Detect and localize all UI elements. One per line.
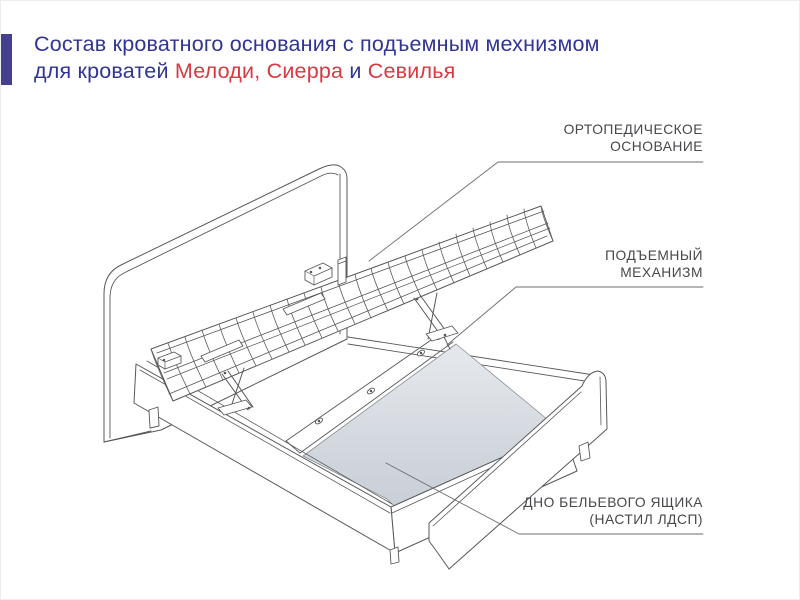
drawer-bottom-label-line1: ДНО БЕЛЬЕВОГО ЯЩИКА [523, 495, 703, 510]
drawer-bottom-label-line2: (НАСТИЛ ЛДСП) [589, 512, 703, 527]
label-orthopedic-base: ОРТОПЕДИЧЕСКОЕ ОСНОВАНИЕ [564, 122, 703, 154]
front-corner-leg [390, 547, 399, 564]
infographic-page: Состав кроватного основания с подъемным … [0, 0, 800, 600]
orthopedic-base-label-line1: ОРТОПЕДИЧЕСКОЕ [564, 122, 703, 137]
lift-mechanism-label-line1: ПОДЪЕМНЫЙ [605, 246, 703, 263]
lift-mechanism-label-line2: МЕХАНИЗМ [620, 265, 703, 280]
headboard-leg [149, 407, 159, 428]
footboard-leg [579, 442, 590, 461]
orthopedic-base-label-line2: ОСНОВАНИЕ [610, 139, 703, 154]
bed-diagram: ОРТОПЕДИЧЕСКОЕ ОСНОВАНИЕ ПОДЪЕМНЫЙ МЕХАН… [1, 1, 800, 600]
label-lift-mechanism: ПОДЪЕМНЫЙ МЕХАНИЗМ [605, 246, 703, 280]
leader-lift-mechanism [447, 287, 703, 345]
lift-mechanism-right [414, 293, 458, 349]
label-drawer-bottom: ДНО БЕЛЬЕВОГО ЯЩИКА (НАСТИЛ ЛДСП) [523, 495, 703, 527]
